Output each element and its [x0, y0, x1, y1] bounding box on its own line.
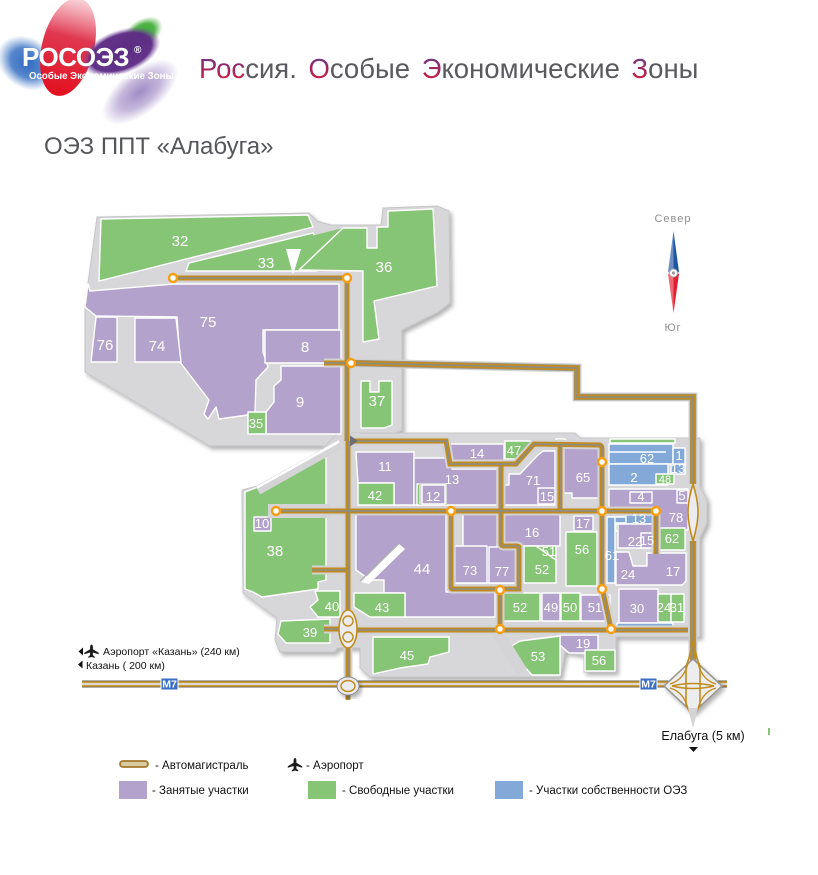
svg-text:42: 42 — [368, 488, 382, 503]
svg-text:Аэропорт «Казань» (240 км): Аэропорт «Казань» (240 км) — [103, 646, 240, 658]
svg-text:15: 15 — [540, 489, 554, 504]
svg-text:16: 16 — [525, 525, 539, 540]
svg-text:Юг: Юг — [664, 322, 681, 334]
svg-text:11: 11 — [378, 459, 392, 474]
svg-text:- Участки собственности ОЭЗ: - Участки собственности ОЭЗ — [529, 785, 687, 797]
svg-text:44: 44 — [414, 561, 431, 578]
svg-text:33: 33 — [258, 255, 275, 272]
svg-text:36: 36 — [376, 259, 393, 276]
svg-text:56: 56 — [575, 542, 589, 557]
svg-text:40: 40 — [325, 599, 339, 614]
svg-text:43: 43 — [375, 600, 389, 615]
svg-text:М7: М7 — [641, 679, 656, 691]
svg-text:47: 47 — [507, 443, 521, 458]
svg-text:35: 35 — [249, 416, 263, 431]
svg-text:24: 24 — [621, 567, 635, 582]
svg-text:2: 2 — [630, 470, 637, 485]
svg-text:53: 53 — [531, 649, 545, 664]
svg-text:32: 32 — [172, 233, 189, 250]
svg-text:49: 49 — [544, 600, 558, 615]
svg-text:75: 75 — [200, 314, 217, 331]
svg-text:19: 19 — [576, 636, 590, 651]
svg-text:- Автомагистраль: - Автомагистраль — [155, 760, 249, 772]
svg-text:17: 17 — [576, 516, 590, 531]
svg-text:48: 48 — [659, 474, 671, 486]
svg-text:37: 37 — [369, 393, 386, 410]
svg-text:12: 12 — [426, 489, 440, 504]
svg-text:Елабуга (5 км): Елабуга (5 км) — [661, 729, 744, 743]
svg-text:74: 74 — [149, 338, 166, 355]
svg-text:- Аэропорт: - Аэропорт — [306, 760, 364, 772]
svg-text:9: 9 — [296, 394, 304, 411]
svg-text:13: 13 — [445, 472, 459, 487]
svg-text:62: 62 — [665, 531, 679, 546]
svg-text:39: 39 — [303, 625, 317, 640]
svg-text:14: 14 — [470, 446, 484, 461]
svg-text:Север: Север — [654, 213, 691, 225]
svg-text:Казань ( 200 км): Казань ( 200 км) — [86, 660, 165, 672]
svg-text:8: 8 — [301, 339, 309, 356]
svg-text:- Свободные участки: - Свободные участки — [342, 785, 454, 797]
svg-text:4: 4 — [637, 489, 644, 504]
svg-text:31: 31 — [670, 600, 684, 615]
svg-text:13: 13 — [671, 461, 685, 476]
svg-text:56: 56 — [592, 653, 606, 668]
svg-text:17: 17 — [666, 564, 680, 579]
svg-text:65: 65 — [576, 470, 590, 485]
svg-text:- Занятые участки: - Занятые участки — [152, 785, 249, 797]
svg-text:61: 61 — [605, 548, 619, 563]
svg-text:51: 51 — [588, 600, 602, 615]
svg-text:76: 76 — [97, 337, 114, 354]
svg-text:73: 73 — [463, 563, 477, 578]
svg-text:71: 71 — [526, 473, 540, 488]
svg-text:15: 15 — [640, 533, 654, 548]
svg-text:30: 30 — [630, 601, 644, 616]
svg-text:10: 10 — [255, 516, 269, 531]
svg-text:М7: М7 — [162, 679, 177, 691]
svg-text:78: 78 — [669, 510, 683, 525]
svg-text:77: 77 — [495, 564, 509, 579]
svg-text:45: 45 — [400, 648, 414, 663]
svg-text:5: 5 — [678, 488, 685, 503]
svg-text:51: 51 — [542, 544, 556, 559]
svg-text:50: 50 — [563, 600, 577, 615]
svg-text:13: 13 — [632, 511, 646, 526]
svg-text:52: 52 — [535, 562, 549, 577]
svg-text:62: 62 — [640, 451, 654, 466]
svg-text:38: 38 — [267, 543, 284, 560]
svg-text:52: 52 — [513, 600, 527, 615]
